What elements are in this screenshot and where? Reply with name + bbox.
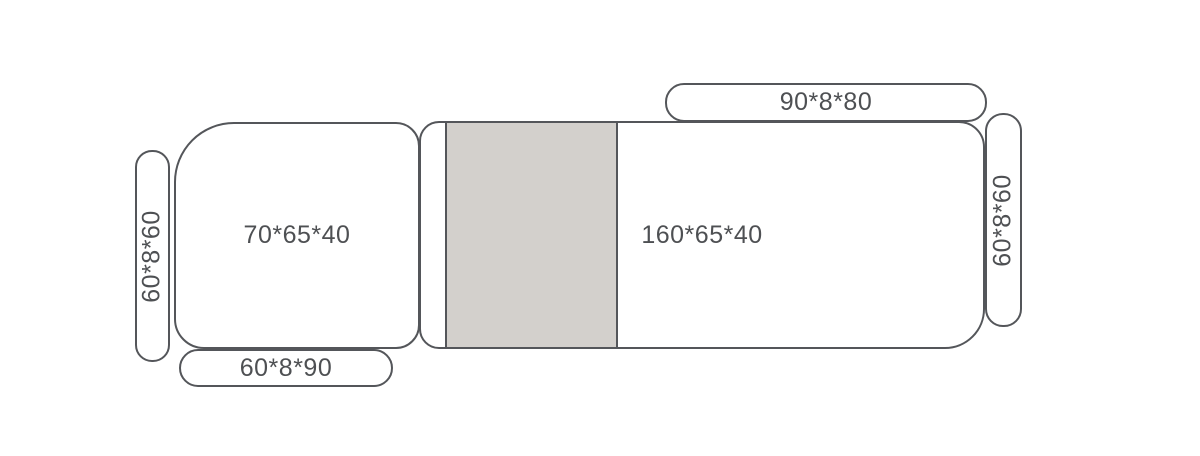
chaise-section-panel: [445, 123, 618, 347]
sofa-layout-diagram: 70*65*40 160*65*40 60*8*90 90*8*80 60*8*…: [0, 0, 1200, 456]
front-cushion-dimension-label: 60*8*90: [240, 356, 332, 381]
left-armrest-dimension-label: 60*8*60: [140, 210, 165, 302]
left-seat-dimension-label: 70*65*40: [244, 223, 351, 248]
front-cushion-module: 60*8*90: [179, 349, 393, 387]
back-cushion-dimension-label: 90*8*80: [780, 90, 872, 115]
left-armrest-module: 60*8*60: [135, 150, 170, 362]
right-armrest-module: 60*8*60: [985, 113, 1022, 327]
right-armrest-dimension-label: 60*8*60: [991, 174, 1016, 266]
right-seat-dimension-label: 160*65*40: [641, 223, 762, 248]
back-cushion-module: 90*8*80: [665, 83, 987, 122]
left-seat-module: 70*65*40: [174, 122, 420, 349]
